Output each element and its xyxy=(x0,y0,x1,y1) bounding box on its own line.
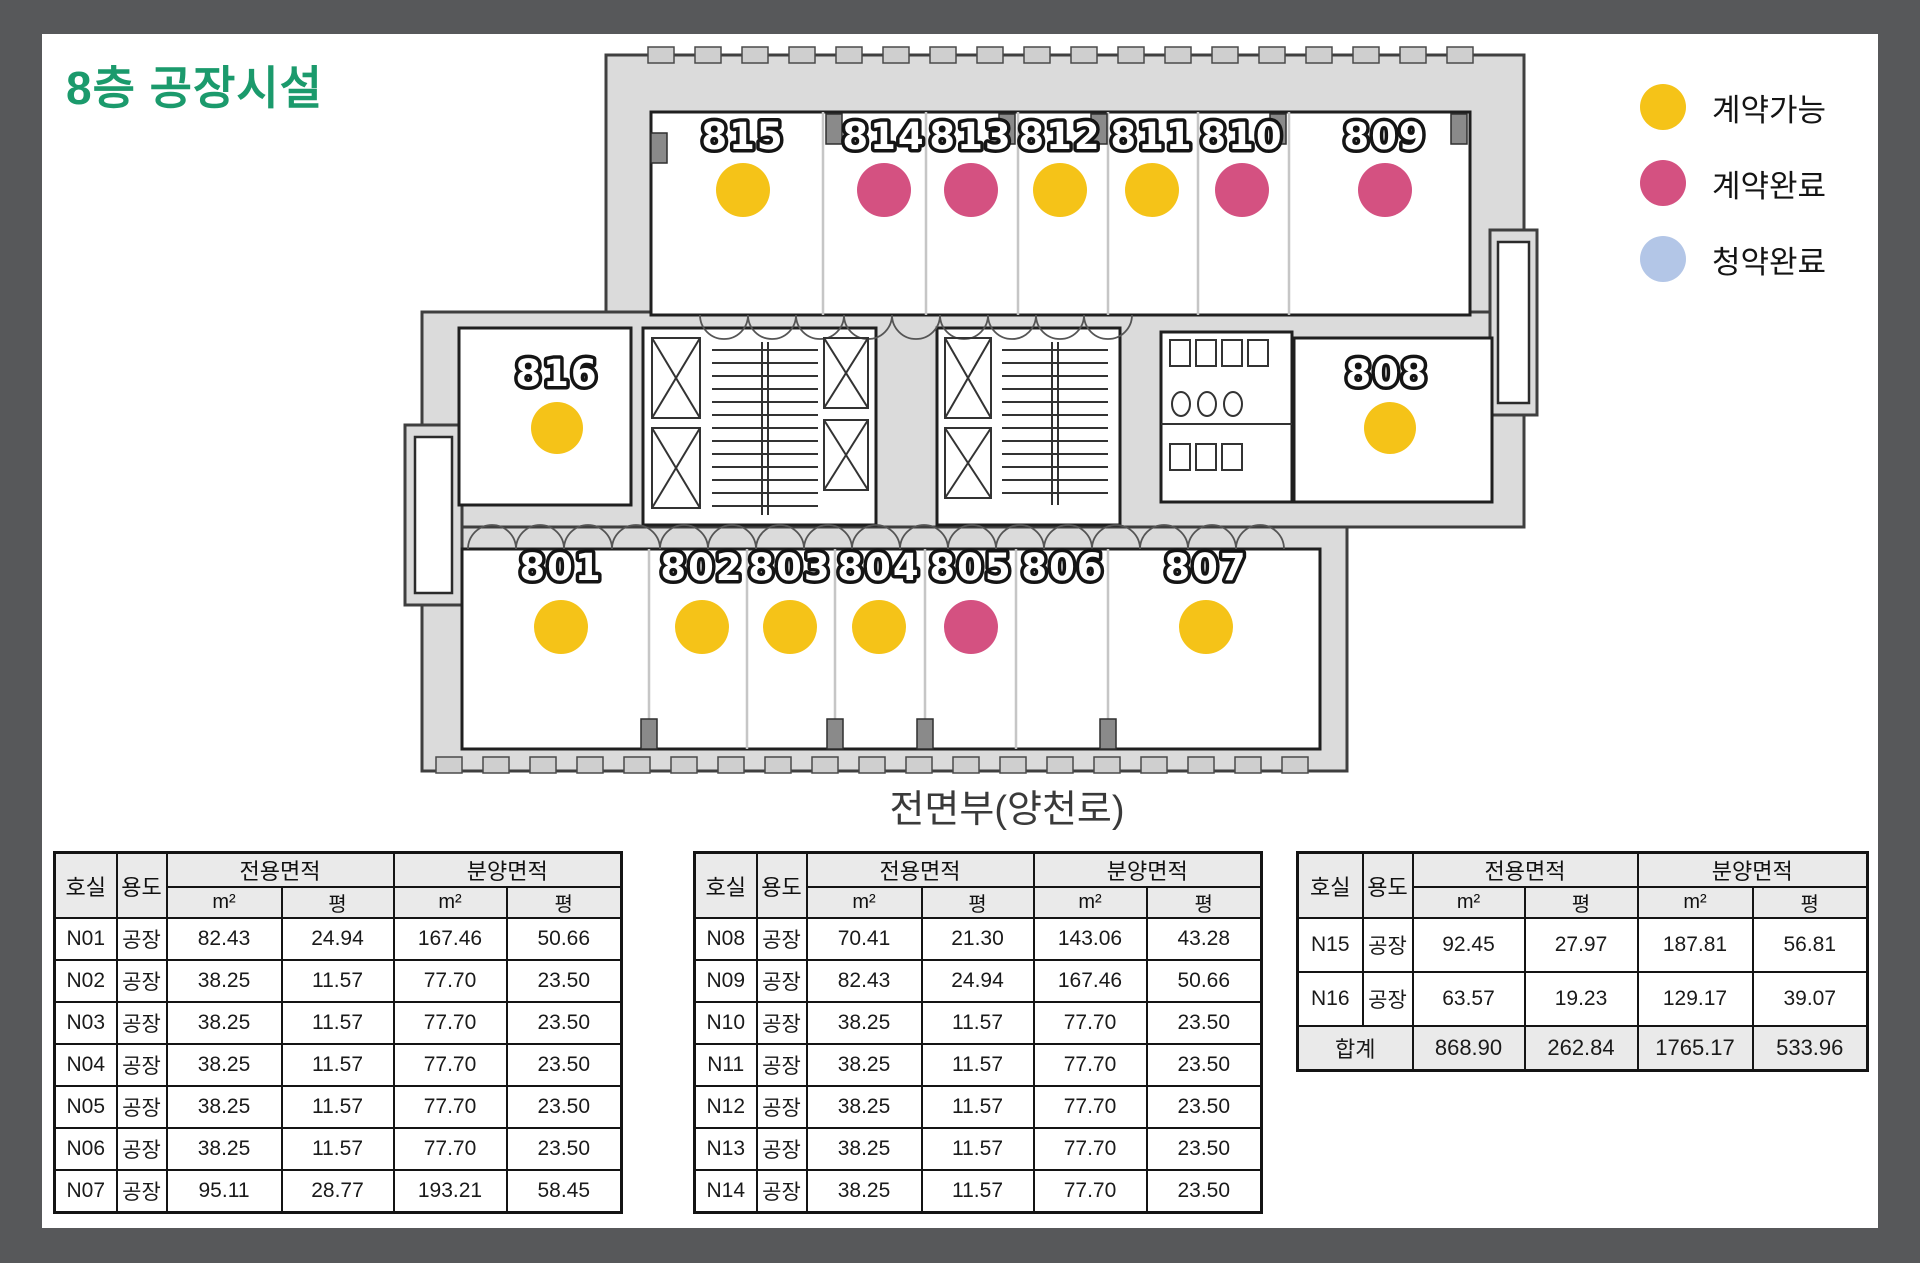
room-label-810: 810 xyxy=(1200,115,1283,158)
legend-label: 계약가능 xyxy=(1712,85,1826,130)
header-cell: 용도 xyxy=(117,853,167,919)
room-label-803: 803 xyxy=(748,546,831,589)
room-dot-803 xyxy=(763,600,817,654)
table-cell: N03 xyxy=(55,1002,117,1044)
table-cell: 공장 xyxy=(757,1002,807,1044)
table-cell: N01 xyxy=(55,918,117,960)
table-cell: 262.84 xyxy=(1525,1026,1638,1070)
room-label-805: 805 xyxy=(929,546,1012,589)
table-cell: 28.77 xyxy=(282,1170,394,1212)
table-cell: 23.50 xyxy=(507,1128,622,1170)
room-label-811: 811 xyxy=(1110,115,1193,158)
table-cell: 23.50 xyxy=(507,1044,622,1086)
room-label-808: 808 xyxy=(1345,352,1428,395)
table-cell: 82.43 xyxy=(807,960,922,1002)
legend-label: 청약완료 xyxy=(1712,237,1826,282)
table-cell: 77.70 xyxy=(394,1128,507,1170)
table-row: N08공장70.4121.30143.0643.28 xyxy=(695,918,1262,960)
header-cell: m² xyxy=(1034,887,1147,918)
table-cell: 38.25 xyxy=(807,1002,922,1044)
table-row: N05공장38.2511.5777.7023.50 xyxy=(55,1086,622,1128)
table-cell: 143.06 xyxy=(1034,918,1147,960)
legend-item-contracted: 계약완료 xyxy=(1640,160,1826,206)
table-cell: 187.81 xyxy=(1638,918,1753,972)
table-cell: 50.66 xyxy=(1147,960,1262,1002)
table-cell: 공장 xyxy=(757,1086,807,1128)
table-cell: 11.57 xyxy=(922,1086,1034,1128)
header-cell: 분양면적 xyxy=(1638,853,1868,888)
table-cell: 39.07 xyxy=(1753,972,1868,1026)
table-cell: 63.57 xyxy=(1413,972,1525,1026)
table-row: N10공장38.2511.5777.7023.50 xyxy=(695,1002,1262,1044)
table-cell: 43.28 xyxy=(1147,918,1262,960)
table-cell: 77.70 xyxy=(394,960,507,1002)
header-cell: 전용면적 xyxy=(1413,853,1638,888)
table-cell: 공장 xyxy=(117,1002,167,1044)
table-row: N07공장95.1128.77193.2158.45 xyxy=(55,1170,622,1212)
table-cell: 77.70 xyxy=(1034,1170,1147,1212)
room-dot-814 xyxy=(857,163,911,217)
table-row: N09공장82.4324.94167.4650.66 xyxy=(695,960,1262,1002)
page: { "page": { "title": "8층 공장시설", "title_c… xyxy=(0,0,1920,1263)
table-cell: 11.57 xyxy=(922,1128,1034,1170)
table-cell: 193.21 xyxy=(394,1170,507,1212)
header-cell: 분양면적 xyxy=(394,853,622,888)
legend-item-available: 계약가능 xyxy=(1640,84,1826,130)
header-cell: m² xyxy=(1413,887,1525,918)
header-cell: 평 xyxy=(1525,887,1638,918)
room-label-815: 815 xyxy=(701,115,784,158)
table-cell: 58.45 xyxy=(507,1170,622,1212)
table-cell: 70.41 xyxy=(807,918,922,960)
status-legend: 계약가능 계약완료 청약완료 xyxy=(1640,84,1826,312)
header-cell: 전용면적 xyxy=(167,853,394,888)
room-dot-805 xyxy=(944,600,998,654)
header-cell: 평 xyxy=(1147,887,1262,918)
room-label-816: 816 xyxy=(515,352,598,395)
table-cell: 38.25 xyxy=(807,1128,922,1170)
table-cell: 23.50 xyxy=(1147,1002,1262,1044)
room-dot-812 xyxy=(1033,163,1087,217)
room-label-814: 814 xyxy=(842,115,925,158)
table-cell: N16 xyxy=(1298,972,1363,1026)
table-cell: 92.45 xyxy=(1413,918,1525,972)
table-cell: 11.57 xyxy=(282,1002,394,1044)
table-cell: N10 xyxy=(695,1002,757,1044)
table-cell: N14 xyxy=(695,1170,757,1212)
table-cell: 27.97 xyxy=(1525,918,1638,972)
table-cell: 19.23 xyxy=(1525,972,1638,1026)
header-cell: 평 xyxy=(1753,887,1868,918)
table-cell: 77.70 xyxy=(1034,1128,1147,1170)
table-row: N04공장38.2511.5777.7023.50 xyxy=(55,1044,622,1086)
room-label-802: 802 xyxy=(660,546,743,589)
room-dot-813 xyxy=(944,163,998,217)
header-cell: m² xyxy=(807,887,922,918)
table-cell: 38.25 xyxy=(807,1170,922,1212)
table-cell: 11.57 xyxy=(282,1128,394,1170)
table-cell: 167.46 xyxy=(1034,960,1147,1002)
table-row: N13공장38.2511.5777.7023.50 xyxy=(695,1128,1262,1170)
header-cell: 평 xyxy=(507,887,622,918)
header-cell: m² xyxy=(1638,887,1753,918)
table-cell: 129.17 xyxy=(1638,972,1753,1026)
table-cell: 533.96 xyxy=(1753,1026,1868,1070)
area-table-n15-n16-total: 호실용도전용면적분양면적m²평m²평N15공장92.4527.97187.815… xyxy=(1296,851,1869,1072)
table-cell: 56.81 xyxy=(1753,918,1868,972)
table-row: N14공장38.2511.5777.7023.50 xyxy=(695,1170,1262,1212)
table-cell: N12 xyxy=(695,1086,757,1128)
contracted-dot-icon xyxy=(1640,160,1686,206)
table-cell: 공장 xyxy=(117,1086,167,1128)
room-dot-816 xyxy=(531,402,583,454)
table-cell: 77.70 xyxy=(1034,1002,1147,1044)
table-cell: 11.57 xyxy=(282,1044,394,1086)
table-cell: 공장 xyxy=(1363,972,1413,1026)
page-title: 8층 공장시설 xyxy=(66,52,323,118)
table-cell: 23.50 xyxy=(507,1002,622,1044)
table-cell: 38.25 xyxy=(167,1128,282,1170)
table-cell: 공장 xyxy=(117,1044,167,1086)
table-cell: 77.70 xyxy=(394,1002,507,1044)
legend-label: 계약완료 xyxy=(1712,161,1826,206)
area-table-n01-n07: 호실용도전용면적분양면적m²평m²평N01공장82.4324.94167.465… xyxy=(53,851,623,1214)
table-cell: 23.50 xyxy=(1147,1044,1262,1086)
front-road-caption: 전면부(양천로) xyxy=(889,789,1124,830)
table-row: N16공장63.5719.23129.1739.07 xyxy=(1298,972,1868,1026)
table-cell: 38.25 xyxy=(167,1002,282,1044)
legend-item-subscribed: 청약완료 xyxy=(1640,236,1826,282)
table-cell: 23.50 xyxy=(1147,1128,1262,1170)
table-cell: N05 xyxy=(55,1086,117,1128)
table-row: N01공장82.4324.94167.4650.66 xyxy=(55,918,622,960)
room-label-813: 813 xyxy=(929,115,1012,158)
header-cell: m² xyxy=(167,887,282,918)
table-cell: 11.57 xyxy=(922,1044,1034,1086)
subscribed-dot-icon xyxy=(1640,236,1686,282)
header-cell: 용도 xyxy=(1363,853,1413,919)
table-cell: 공장 xyxy=(117,918,167,960)
table-cell: 868.90 xyxy=(1413,1026,1525,1070)
table-row: N06공장38.2511.5777.7023.50 xyxy=(55,1128,622,1170)
table-cell: 1765.17 xyxy=(1638,1026,1753,1070)
table-cell: 38.25 xyxy=(807,1044,922,1086)
table-cell: N02 xyxy=(55,960,117,1002)
table-cell: 11.57 xyxy=(922,1170,1034,1212)
table-cell: 24.94 xyxy=(922,960,1034,1002)
header-cell: 호실 xyxy=(1298,853,1363,919)
table-cell: 23.50 xyxy=(507,960,622,1002)
header-cell: 전용면적 xyxy=(807,853,1034,888)
header-cell: 호실 xyxy=(55,853,117,919)
room-dot-809 xyxy=(1358,163,1412,217)
table-cell: 합계 xyxy=(1298,1026,1413,1070)
table-row: N02공장38.2511.5777.7023.50 xyxy=(55,960,622,1002)
header-cell: 용도 xyxy=(757,853,807,919)
table-cell: 공장 xyxy=(757,1044,807,1086)
room-dot-810 xyxy=(1215,163,1269,217)
room-dot-804 xyxy=(852,600,906,654)
table-cell: 11.57 xyxy=(282,960,394,1002)
table-cell: 공장 xyxy=(757,960,807,1002)
room-dot-815 xyxy=(716,163,770,217)
table-cell: 82.43 xyxy=(167,918,282,960)
table-cell: 38.25 xyxy=(807,1086,922,1128)
table-cell: 77.70 xyxy=(394,1044,507,1086)
table-cell: 38.25 xyxy=(167,1044,282,1086)
table-cell: 167.46 xyxy=(394,918,507,960)
room-label-809: 809 xyxy=(1343,115,1426,158)
room-dot-802 xyxy=(675,600,729,654)
table-cell: 공장 xyxy=(757,1170,807,1212)
header-cell: 평 xyxy=(922,887,1034,918)
total-row: 합계868.90262.841765.17533.96 xyxy=(1298,1026,1868,1070)
room-dot-801 xyxy=(534,600,588,654)
table-cell: N13 xyxy=(695,1128,757,1170)
room-dot-807 xyxy=(1179,600,1233,654)
header-cell: m² xyxy=(394,887,507,918)
table-cell: 77.70 xyxy=(1034,1044,1147,1086)
room-label-804: 804 xyxy=(837,546,920,589)
table-cell: 77.70 xyxy=(394,1086,507,1128)
table-cell: 11.57 xyxy=(282,1086,394,1128)
floorplan: 815 814 813 812 811 810 809 816 808 801 … xyxy=(400,40,1550,830)
available-dot-icon xyxy=(1640,84,1686,130)
table-cell: 24.94 xyxy=(282,918,394,960)
table-cell: 23.50 xyxy=(507,1086,622,1128)
table-cell: 95.11 xyxy=(167,1170,282,1212)
area-table-n08-n14: 호실용도전용면적분양면적m²평m²평N08공장70.4121.30143.064… xyxy=(693,851,1263,1214)
table-cell: 11.57 xyxy=(922,1002,1034,1044)
table-cell: 공장 xyxy=(117,1170,167,1212)
table-cell: 77.70 xyxy=(1034,1086,1147,1128)
table-cell: N06 xyxy=(55,1128,117,1170)
header-cell: 호실 xyxy=(695,853,757,919)
table-cell: 38.25 xyxy=(167,1086,282,1128)
table-cell: N11 xyxy=(695,1044,757,1086)
table-cell: 21.30 xyxy=(922,918,1034,960)
table-row: N11공장38.2511.5777.7023.50 xyxy=(695,1044,1262,1086)
room-label-812: 812 xyxy=(1018,115,1101,158)
table-cell: 공장 xyxy=(117,1128,167,1170)
room-label-806: 806 xyxy=(1021,546,1104,589)
table-cell: 23.50 xyxy=(1147,1086,1262,1128)
room-label-807: 807 xyxy=(1164,546,1247,589)
table-row: N03공장38.2511.5777.7023.50 xyxy=(55,1002,622,1044)
table-cell: N09 xyxy=(695,960,757,1002)
table-cell: 공장 xyxy=(117,960,167,1002)
table-cell: 공장 xyxy=(757,918,807,960)
table-cell: N15 xyxy=(1298,918,1363,972)
table-cell: N04 xyxy=(55,1044,117,1086)
table-row: N12공장38.2511.5777.7023.50 xyxy=(695,1086,1262,1128)
table-cell: 공장 xyxy=(757,1128,807,1170)
room-dot-808 xyxy=(1364,402,1416,454)
table-cell: N08 xyxy=(695,918,757,960)
table-cell: 23.50 xyxy=(1147,1170,1262,1212)
room-dot-811 xyxy=(1125,163,1179,217)
table-cell: 50.66 xyxy=(507,918,622,960)
table-row: N15공장92.4527.97187.8156.81 xyxy=(1298,918,1868,972)
room-label-801: 801 xyxy=(519,546,602,589)
table-cell: N07 xyxy=(55,1170,117,1212)
header-cell: 분양면적 xyxy=(1034,853,1262,888)
table-cell: 공장 xyxy=(1363,918,1413,972)
header-cell: 평 xyxy=(282,887,394,918)
table-cell: 38.25 xyxy=(167,960,282,1002)
